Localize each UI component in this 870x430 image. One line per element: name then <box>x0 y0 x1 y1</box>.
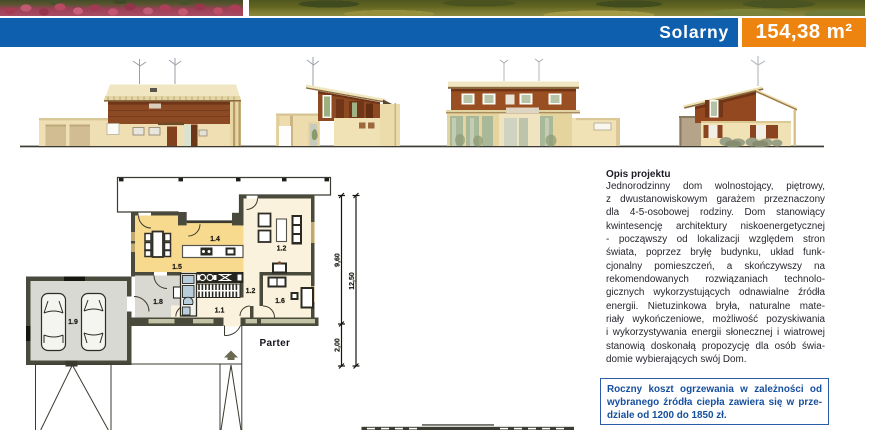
svg-text:2,00: 2,00 <box>335 338 342 352</box>
svg-text:1.9: 1.9 <box>68 319 78 326</box>
svg-text:1.8: 1.8 <box>153 299 163 306</box>
svg-text:1.6: 1.6 <box>275 298 285 305</box>
svg-text:9,60: 9,60 <box>335 253 342 267</box>
svg-text:1.5: 1.5 <box>172 264 182 271</box>
svg-text:12,50: 12,50 <box>349 272 356 290</box>
svg-text:1.2: 1.2 <box>246 288 256 295</box>
svg-text:1.1: 1.1 <box>215 308 225 315</box>
svg-text:1.4: 1.4 <box>210 236 220 243</box>
svg-text:1.2: 1.2 <box>277 246 287 253</box>
